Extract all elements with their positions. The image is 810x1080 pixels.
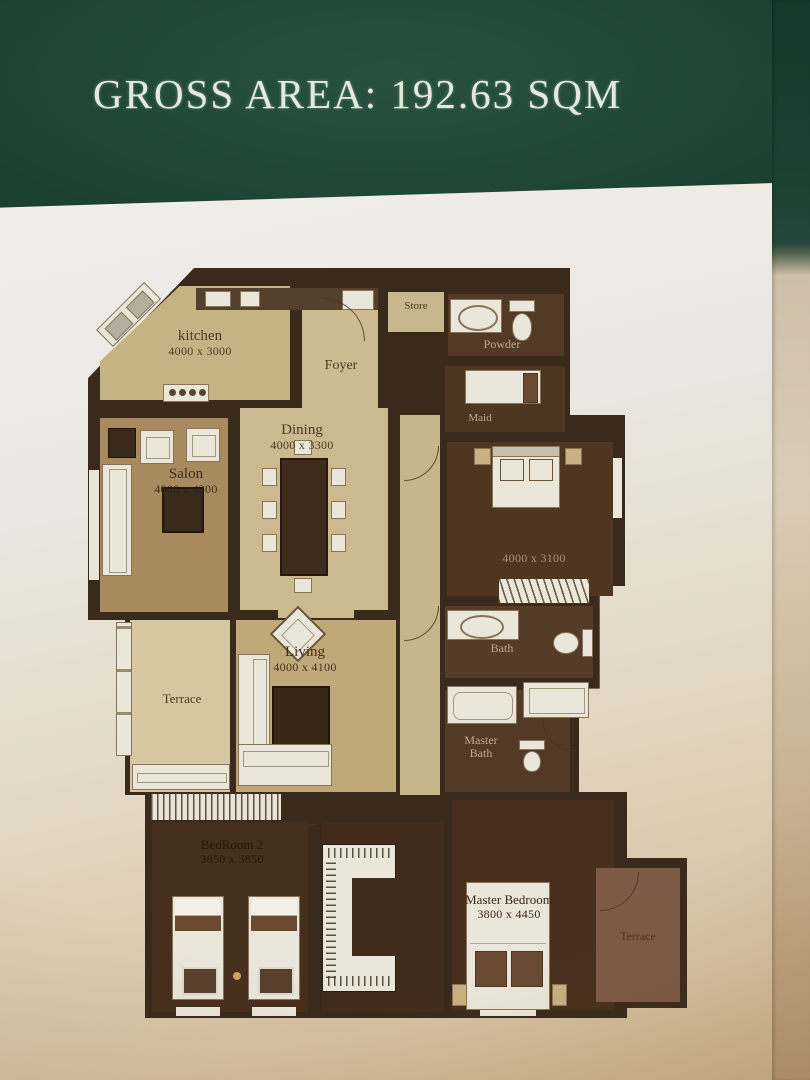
washbasin-icon: [460, 615, 504, 639]
tv-table: [272, 686, 330, 746]
window: [89, 470, 99, 580]
bathtub: [447, 686, 517, 724]
page-edge-strip: [772, 0, 810, 1080]
cushion: [192, 435, 216, 457]
dining-chair: [331, 534, 346, 552]
blanket-band: [251, 916, 297, 931]
pillow: [523, 373, 538, 403]
toilet-bowl: [512, 313, 532, 341]
window: [613, 458, 622, 518]
burner: [199, 389, 206, 396]
burner: [179, 389, 186, 396]
nightstand: [474, 448, 491, 465]
washbasin-counter: [447, 610, 519, 640]
kitchen-appliance: [205, 291, 231, 307]
pillow: [251, 899, 297, 916]
wardrobe: [498, 578, 590, 604]
headboard: [493, 447, 559, 457]
hanger-rail: [326, 858, 336, 978]
twin-bed: [172, 896, 224, 1000]
hanger-rail: [328, 976, 390, 986]
inner-line: [281, 618, 315, 652]
store-floor: [388, 292, 444, 332]
dining-chair: [331, 501, 346, 519]
blanket-band: [175, 916, 221, 931]
pillow: [500, 459, 524, 481]
pillow: [475, 951, 507, 987]
cushion: [146, 437, 170, 459]
burner: [169, 389, 176, 396]
wall-stub: [354, 610, 396, 620]
dining-chair: [294, 578, 312, 593]
toilet-tank: [582, 629, 593, 657]
header-band: GROSS AREA: 192.63 SQM: [0, 0, 810, 214]
pillow: [529, 459, 553, 481]
toilet-icon: [518, 740, 548, 774]
bed: [466, 882, 550, 1010]
wardrobe: [150, 793, 282, 821]
planter-boxes: [116, 622, 132, 756]
toilet-bowl: [523, 751, 541, 772]
maid-bed: [465, 370, 541, 404]
dining-chair: [262, 468, 277, 486]
armchair: [186, 428, 220, 462]
window: [176, 1007, 220, 1016]
knob: [233, 972, 241, 980]
sofa: [102, 464, 132, 576]
armchair: [140, 430, 174, 464]
shower-inner: [529, 688, 585, 714]
brochure-photo: GROSS AREA: 192.63 SQM: [0, 0, 810, 1080]
twin-bed: [248, 896, 300, 1000]
window: [252, 1007, 296, 1016]
dining-chair: [294, 440, 312, 455]
nightstand: [452, 984, 467, 1006]
toilet-bowl: [553, 632, 579, 654]
closet-notch: [352, 878, 396, 956]
kitchen-appliance: [240, 291, 260, 307]
dining-chair: [262, 534, 277, 552]
stove-icon: [163, 384, 209, 402]
footboard: [182, 967, 218, 995]
corner-sofa-horizontal: [238, 744, 332, 786]
terrace-railing: [132, 764, 230, 790]
pillow: [511, 951, 543, 987]
toilet-icon: [551, 628, 593, 660]
bed: [492, 446, 560, 508]
wall-stub: [236, 610, 278, 620]
nightstand: [552, 984, 567, 1006]
toilet-icon: [508, 300, 538, 346]
nightstand: [565, 448, 582, 465]
dining-table: [280, 458, 328, 576]
burner: [189, 389, 196, 396]
pillow: [175, 899, 221, 916]
coffee-table: [162, 487, 204, 533]
rail-line: [137, 773, 227, 783]
cushion: [243, 751, 329, 767]
cushion: [109, 469, 127, 573]
blanket-line: [470, 943, 546, 944]
footboard: [258, 967, 294, 995]
washbasin-icon: [458, 305, 498, 331]
dining-chair: [331, 468, 346, 486]
hanger-rail: [328, 848, 390, 858]
toilet-tank: [509, 300, 535, 312]
tub-inner: [453, 692, 513, 720]
tv-unit: [108, 428, 136, 458]
dining-chair: [262, 501, 277, 519]
toilet-tank: [519, 740, 545, 750]
shower: [523, 682, 589, 718]
gross-area-title: GROSS AREA: 192.63 SQM: [93, 70, 693, 118]
washbasin-counter: [450, 299, 502, 333]
